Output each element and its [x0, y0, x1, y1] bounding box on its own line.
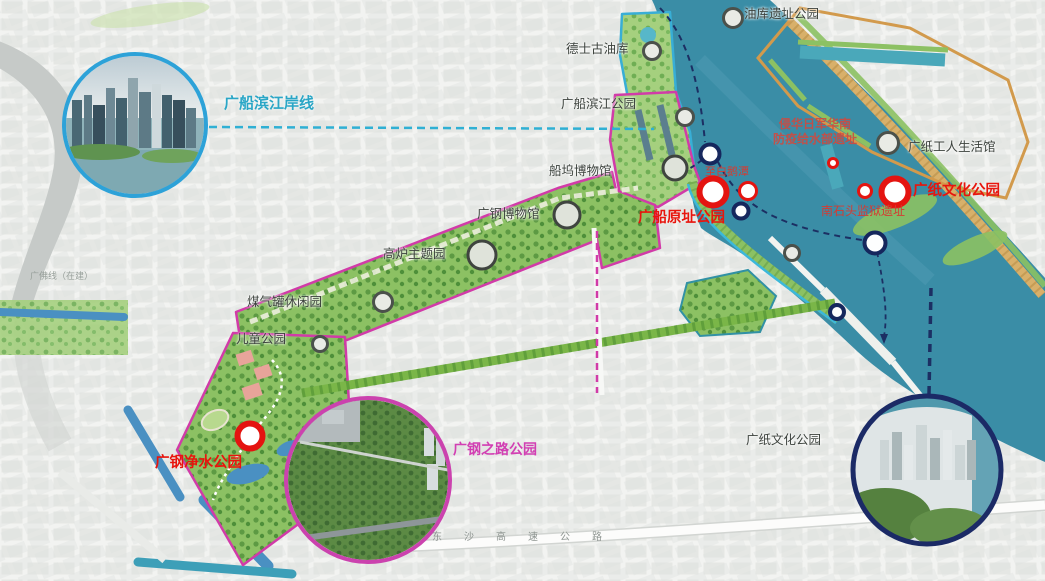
park-node-marker	[675, 107, 695, 127]
park-node-marker	[662, 155, 689, 182]
label-gg-road-park: 广钢之路公园	[453, 439, 537, 459]
heritage-site-marker	[738, 181, 758, 201]
label-oil-depot-ruins-park: 油库遗址公园	[744, 3, 819, 22]
label-paper-culture-park: 广纸文化公园	[746, 429, 821, 448]
label-gg-steel-museum: 广钢博物馆	[477, 203, 540, 222]
label-gc-riverside-park: 广船滨江公园	[561, 93, 636, 112]
label-to-baietan: 至白鹅潭	[705, 163, 749, 179]
label-metro-under-construction: 广佛线（在建）	[30, 269, 93, 282]
label-nanshitou-prison-site: 南石头监狱遗址	[821, 202, 905, 219]
label-gas-tank-leisure-park: 煤气罐休闲园	[247, 291, 322, 310]
label-expressway: 东沙高速公路	[432, 528, 624, 543]
label-paper-workers-hall: 广纸工人生活馆	[908, 136, 996, 155]
label-gc-water-purify-park: 广钢净水公园	[155, 451, 242, 472]
park-node-marker	[722, 7, 744, 29]
label-japanese-army-site-line1: 侵华日军华南	[750, 117, 880, 132]
photo-inset-gg-road-park	[286, 398, 452, 564]
park-node-marker	[372, 291, 394, 313]
heritage-site-marker	[827, 157, 839, 169]
label-gc-riverside-shoreline: 广船滨江岸线	[224, 92, 314, 113]
park-node-marker	[467, 240, 498, 271]
label-japanese-army-site: 侵华日军华南 防疫给水部遗址	[750, 117, 880, 147]
park-node-marker	[553, 201, 582, 230]
left-wetland-park	[0, 300, 128, 355]
ferry-node-marker	[732, 202, 751, 221]
key-park-marker	[235, 421, 266, 452]
ferry-node-marker	[863, 231, 888, 256]
map-artwork	[0, 0, 1045, 581]
label-blast-furnace-park: 高炉主题园	[383, 243, 446, 262]
heritage-site-marker	[857, 183, 873, 199]
label-paper-culture-park-red: 广纸文化公园	[913, 179, 1000, 200]
ferry-node-marker	[828, 303, 846, 321]
label-children-park: 儿童公园	[236, 328, 286, 347]
key-park-marker	[697, 176, 730, 209]
label-japanese-army-site-line2: 防疫给水部遗址	[750, 132, 880, 147]
park-node-marker	[642, 41, 662, 61]
park-node-marker	[783, 244, 801, 262]
park-node-marker	[311, 335, 329, 353]
planning-map: 油库遗址公园 德士古油库 广船滨江公园 船坞博物馆 广钢博物馆 高炉主题园 煤气…	[0, 0, 1045, 581]
label-dock-museum: 船坞博物馆	[549, 160, 612, 179]
label-texaco-oil-depot: 德士古油库	[566, 38, 629, 57]
label-gc-original-site-park: 广船原址公园	[638, 206, 725, 227]
